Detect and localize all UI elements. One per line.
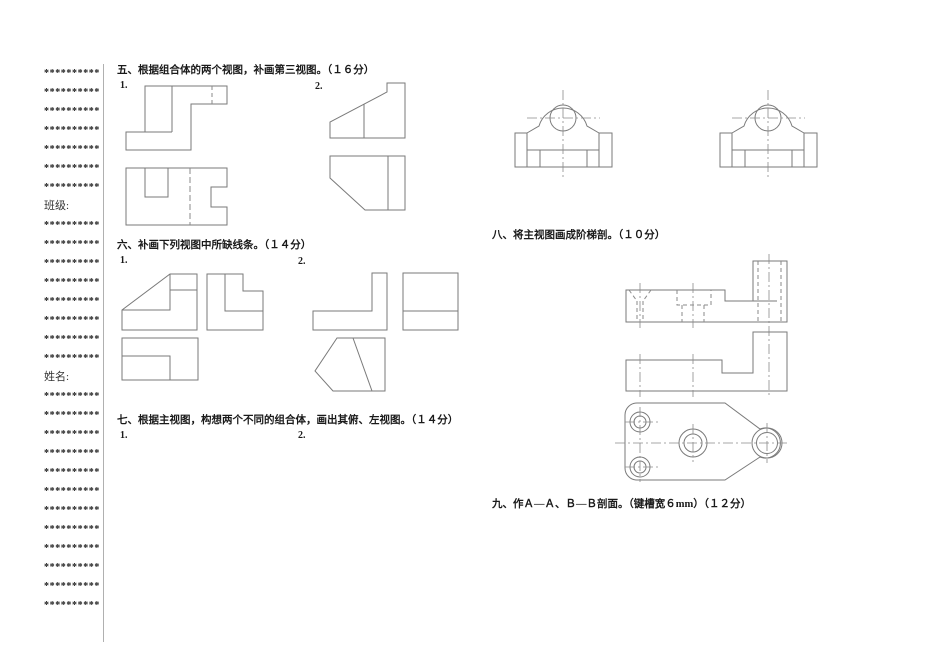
q5-fig2-top-view xyxy=(330,156,405,210)
q5-fig1-top-view xyxy=(126,168,227,225)
q5-fig1-front-view xyxy=(126,86,227,150)
q8-front-view xyxy=(626,254,787,396)
q6-fig2-side-view xyxy=(403,273,458,330)
q5-fig2-front-view xyxy=(330,83,405,138)
q6-fig1-top-view xyxy=(122,338,198,380)
q6-fig1-side-view xyxy=(207,274,263,330)
q6-fig2-front-view xyxy=(313,273,387,330)
q8-given-view-right xyxy=(720,90,817,177)
q9-plate-view xyxy=(615,403,790,482)
q8-top-view xyxy=(626,332,787,397)
exam-sheet: { "margin": { "star_row": "**********", … xyxy=(0,0,950,658)
q6-fig1-front-view xyxy=(122,274,197,330)
drawings-layer xyxy=(0,0,950,658)
q6-fig2-top-view xyxy=(315,338,385,391)
q8-given-view-left xyxy=(515,90,612,177)
